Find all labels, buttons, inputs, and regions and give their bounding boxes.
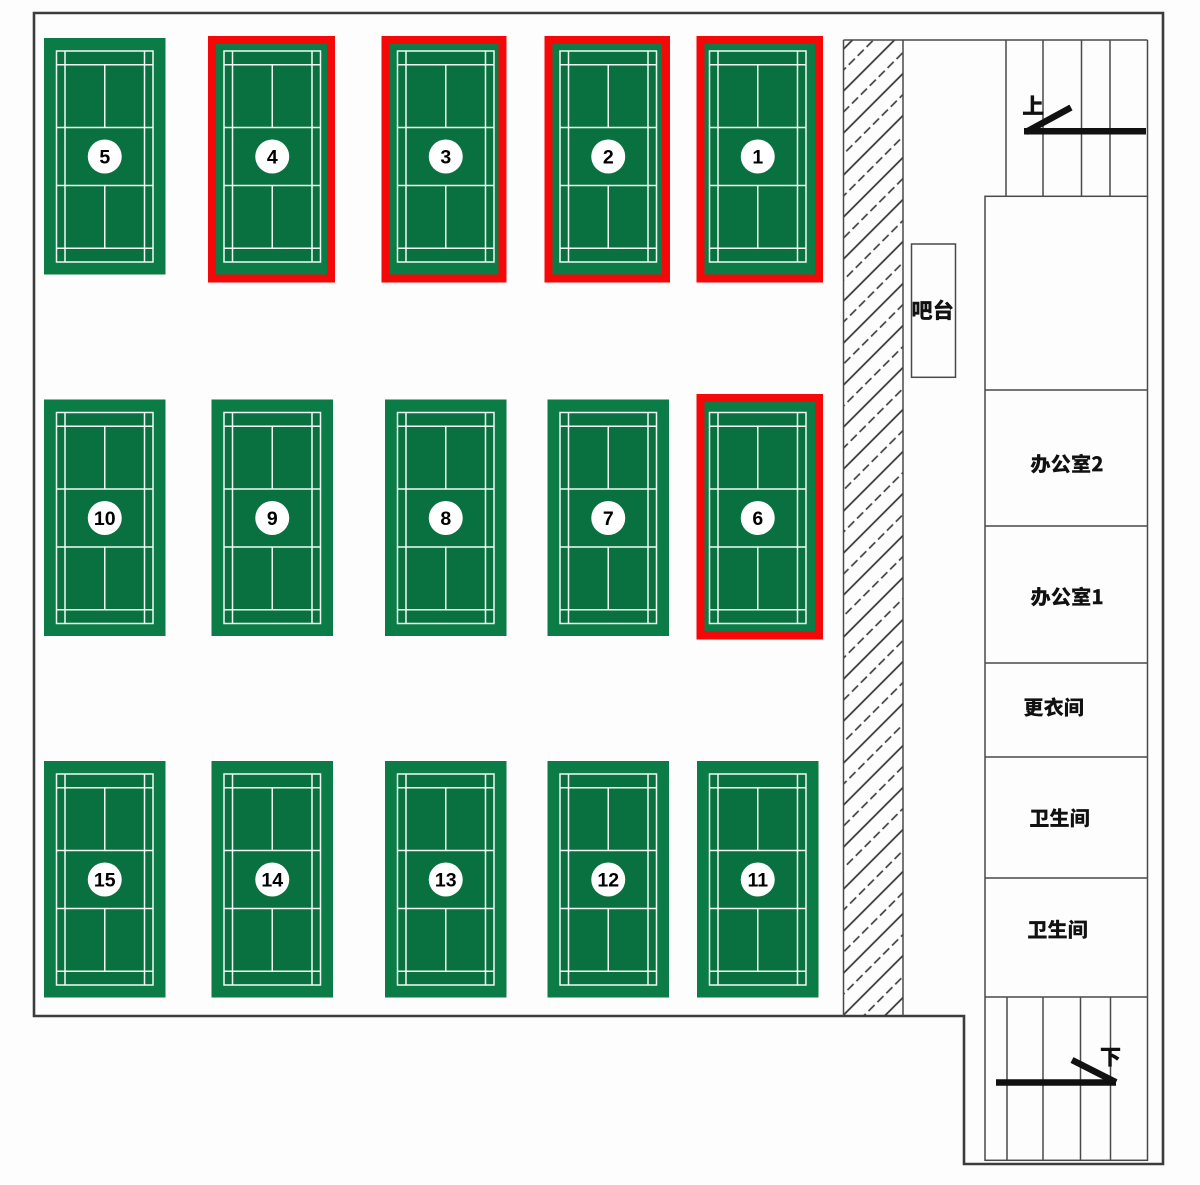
svg-text:12: 12 — [597, 870, 619, 892]
svg-text:7: 7 — [603, 508, 614, 530]
svg-text:15: 15 — [94, 870, 116, 892]
svg-text:14: 14 — [261, 870, 283, 892]
svg-text:8: 8 — [440, 508, 451, 530]
svg-text:11: 11 — [747, 870, 768, 892]
svg-text:13: 13 — [435, 870, 457, 892]
svg-text:1: 1 — [752, 147, 763, 169]
svg-text:2: 2 — [603, 147, 614, 169]
svg-text:4: 4 — [267, 147, 278, 169]
svg-text:10: 10 — [94, 508, 116, 530]
svg-text:6: 6 — [752, 508, 763, 530]
svg-text:5: 5 — [99, 147, 110, 169]
svg-text:9: 9 — [267, 508, 278, 530]
svg-text:3: 3 — [440, 147, 451, 169]
